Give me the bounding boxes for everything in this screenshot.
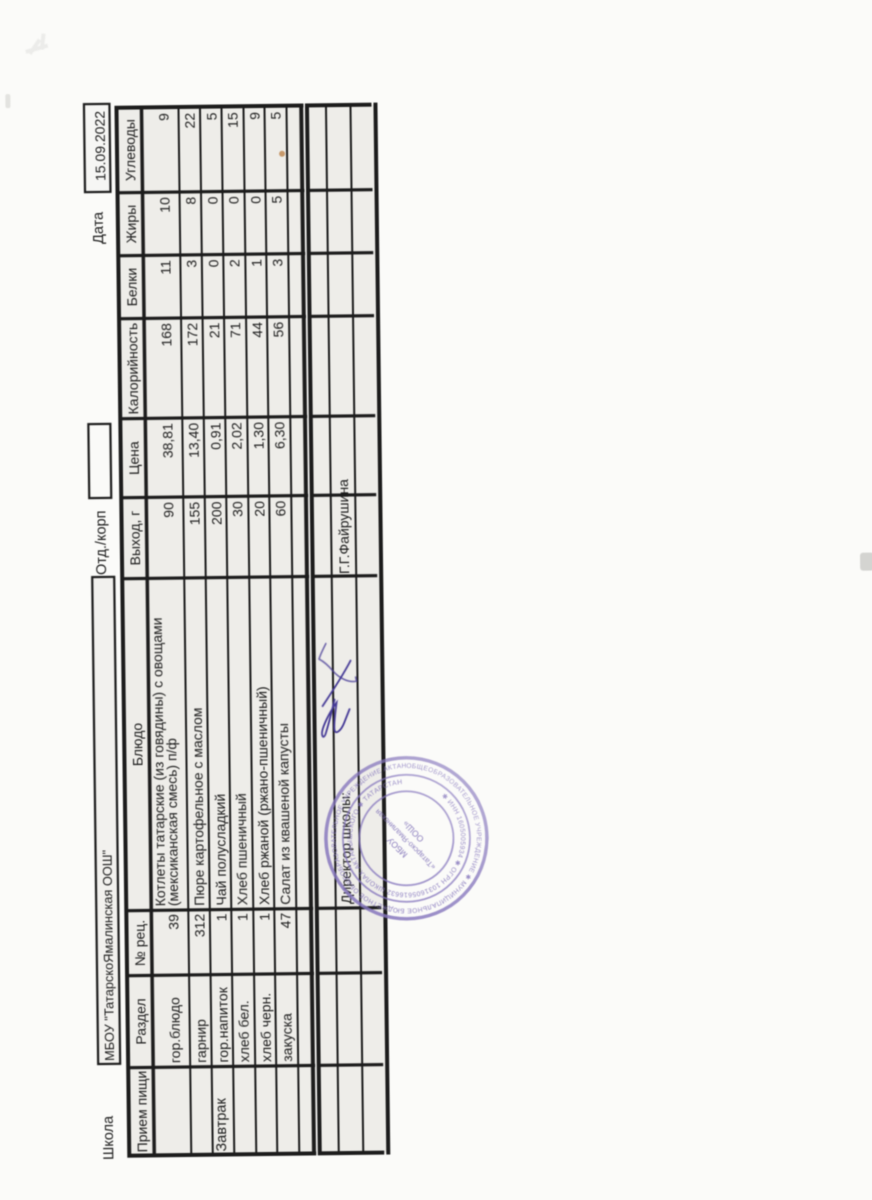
svg-text:«Татарско-Ямалинская: «Татарско-Ямалинская	[373, 808, 437, 872]
